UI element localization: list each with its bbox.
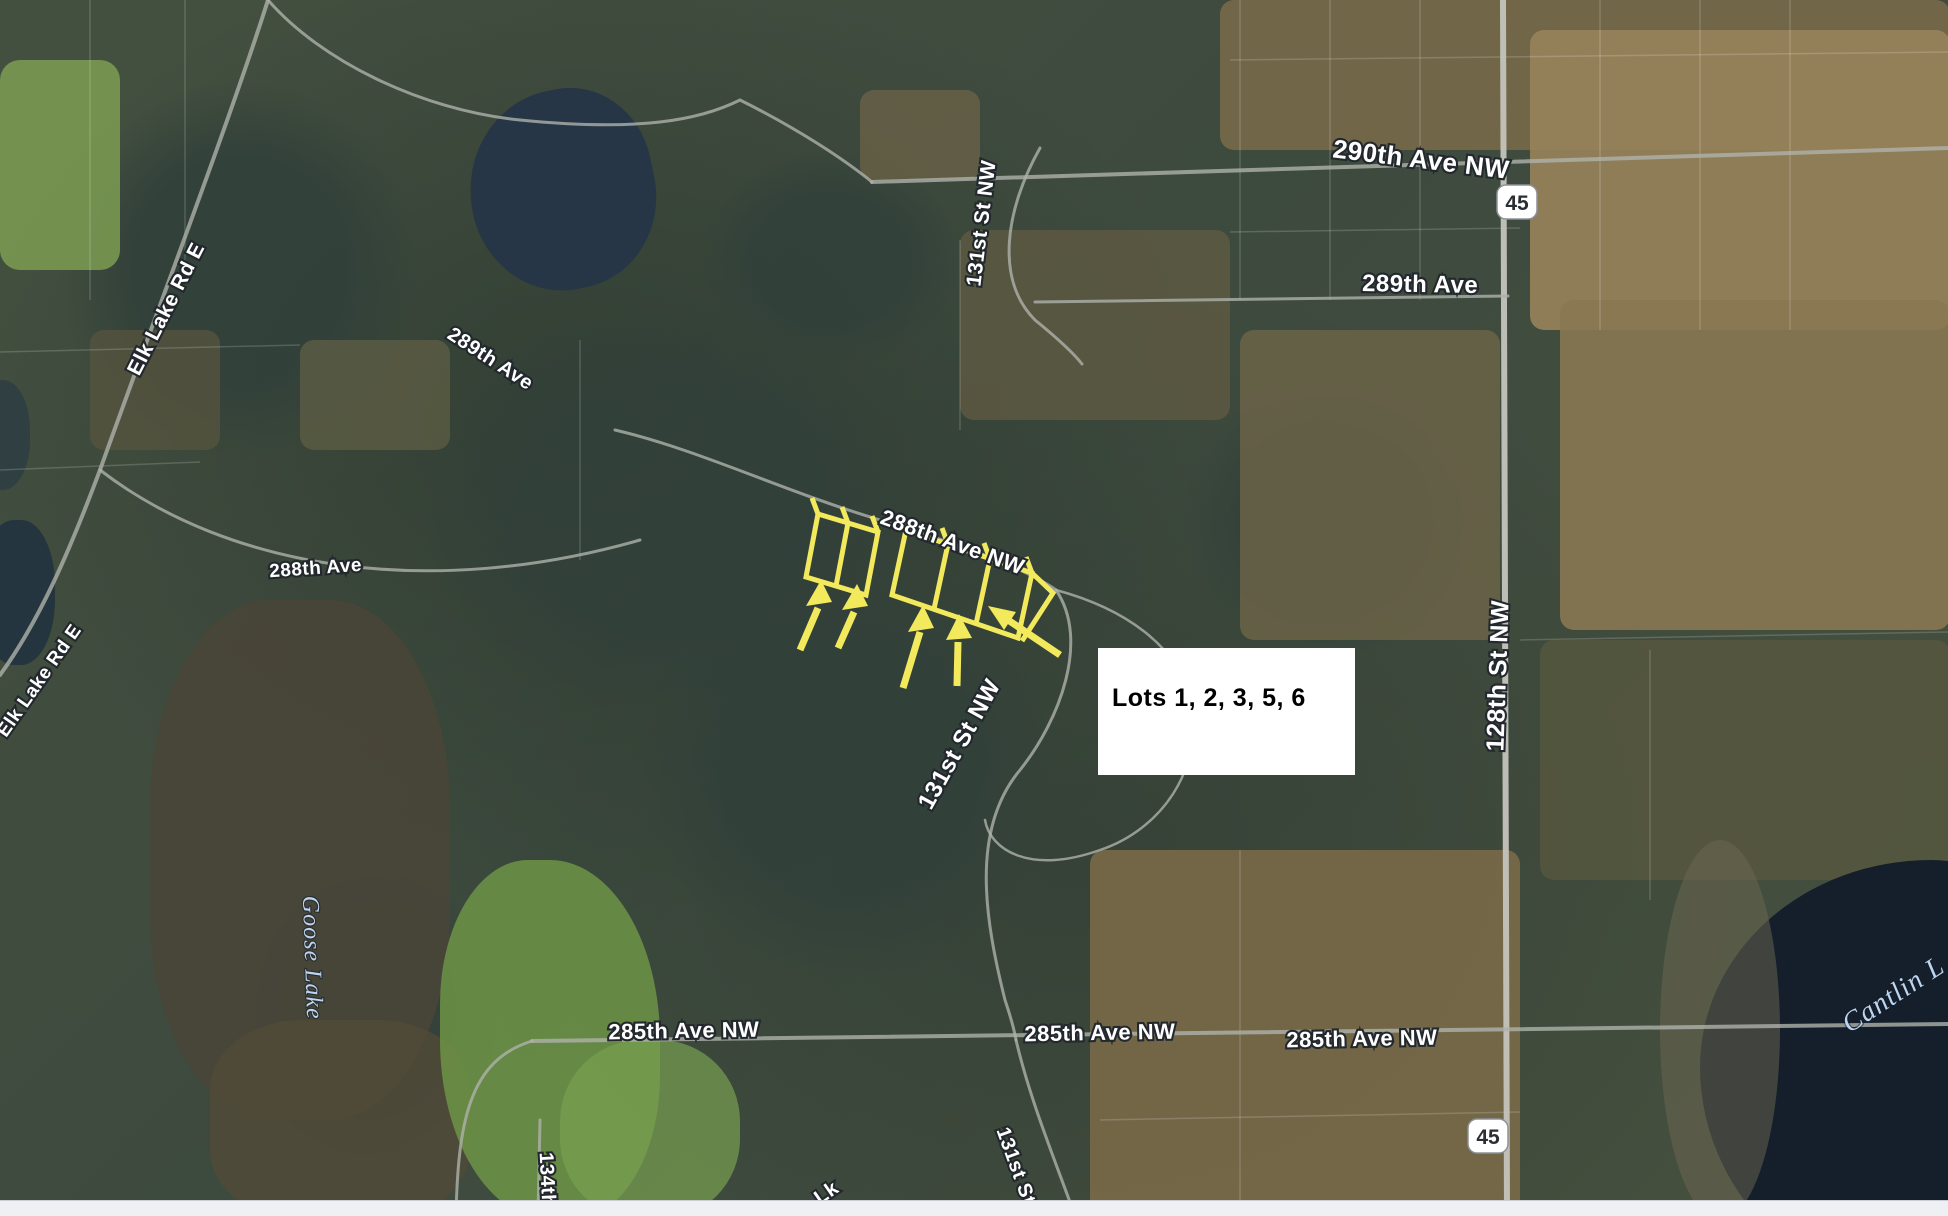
map-overlay: 290th Ave NW 289th Ave 131st St NW Elk L… — [0, 0, 1948, 1216]
lot-arrow-head — [946, 614, 972, 640]
lot-arrow — [903, 632, 920, 688]
lot-arrow — [838, 612, 854, 648]
water-labels: Goose Lake Cantlin L — [297, 895, 1948, 1039]
road-label-285th-ave-nw-2: 285th Ave NW — [1024, 1019, 1175, 1047]
satellite-map[interactable]: 290th Ave NW 289th Ave 131st St NW Elk L… — [0, 0, 1948, 1216]
road-label-128th-st-nw: 128th St NW — [1481, 600, 1514, 752]
road-label-289th-ave-right: 289th Ave — [1362, 270, 1479, 299]
lot-divider — [836, 523, 848, 586]
road-label-131st-st-bottom: 131st St — [991, 1124, 1039, 1207]
road-288th-left — [100, 470, 640, 571]
route-shield-45-top: 45 — [1497, 185, 1537, 219]
road-285th-tail — [456, 1041, 532, 1216]
lot-arrow — [800, 608, 818, 650]
lots-callout: Lots 1, 2, 3, 5, 6 — [1098, 648, 1355, 775]
lot-arrow — [957, 642, 958, 686]
road-top-left — [268, 0, 872, 182]
road-label-290th-ave-nw: 290th Ave NW — [1331, 133, 1511, 184]
road-label-285th-ave-nw-3: 285th Ave NW — [1286, 1025, 1437, 1053]
road-13st — [1009, 148, 1082, 364]
horizontal-scrollbar-track[interactable] — [0, 1200, 1948, 1216]
route-shield-45-bottom-text: 45 — [1476, 1126, 1500, 1149]
road-label-elk-lake-rd-e-upper: Elk Lake Rd E — [123, 239, 209, 379]
road-elk-lake — [0, 0, 268, 675]
road-label-131st-st-nw-mid: 131st St NW — [913, 675, 1007, 814]
lot-divider — [934, 544, 948, 609]
route-shield-45-bottom: 45 — [1468, 1119, 1508, 1153]
road-label-elk-lake-rd-e-lower: Elk Lake Rd E — [0, 621, 86, 741]
route-shield-45-top-text: 45 — [1505, 192, 1529, 215]
lot-divider — [976, 559, 990, 624]
lots-callout-text: Lots 1, 2, 3, 5, 6 — [1112, 684, 1306, 712]
road-label-289th-ave-left: 289th Ave — [443, 323, 537, 395]
water-label-goose-lake: Goose Lake — [297, 895, 327, 1020]
road-label-285th-ave-nw-1: 285th Ave NW — [608, 1017, 759, 1045]
road-label-288th-ave-left: 288th Ave — [269, 555, 363, 582]
